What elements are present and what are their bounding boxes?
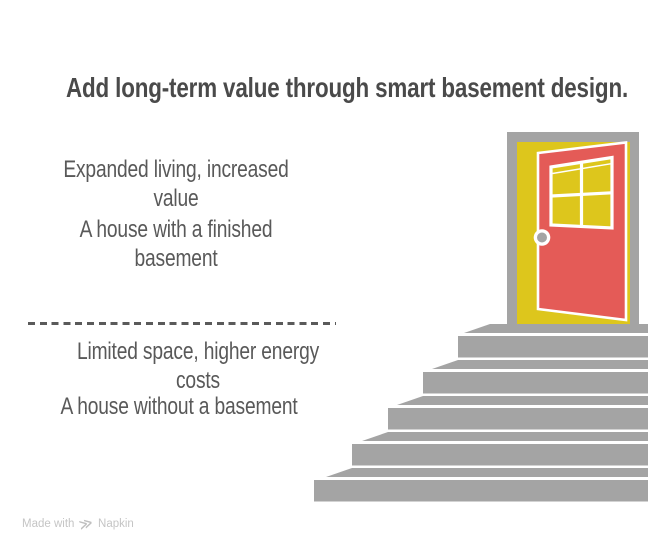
napkin-logo-icon: ≫ [78,516,94,532]
door-at-top-of-stairs-illustration [0,0,672,552]
stair-tread-3 [397,396,648,405]
stair-tread-1 [464,324,648,333]
stair-face-2 [423,372,648,394]
door-knob [534,229,551,246]
infographic-canvas: Add long-term value through smart baseme… [0,0,672,552]
staircase [314,324,648,502]
door-knob-center [537,233,547,243]
brand-text: Napkin [98,518,134,530]
stair-tread-5 [326,468,648,477]
stair-tread-4 [362,432,648,441]
napkin-watermark: Made with ≫ Napkin [22,517,134,530]
door-window [551,158,612,229]
stair-face-1 [458,336,648,358]
stair-face-3 [388,408,648,430]
stair-face-4 [352,444,648,466]
stair-tread-2 [432,360,648,369]
made-with-text: Made with [22,518,74,530]
stair-face-5 [314,480,648,502]
